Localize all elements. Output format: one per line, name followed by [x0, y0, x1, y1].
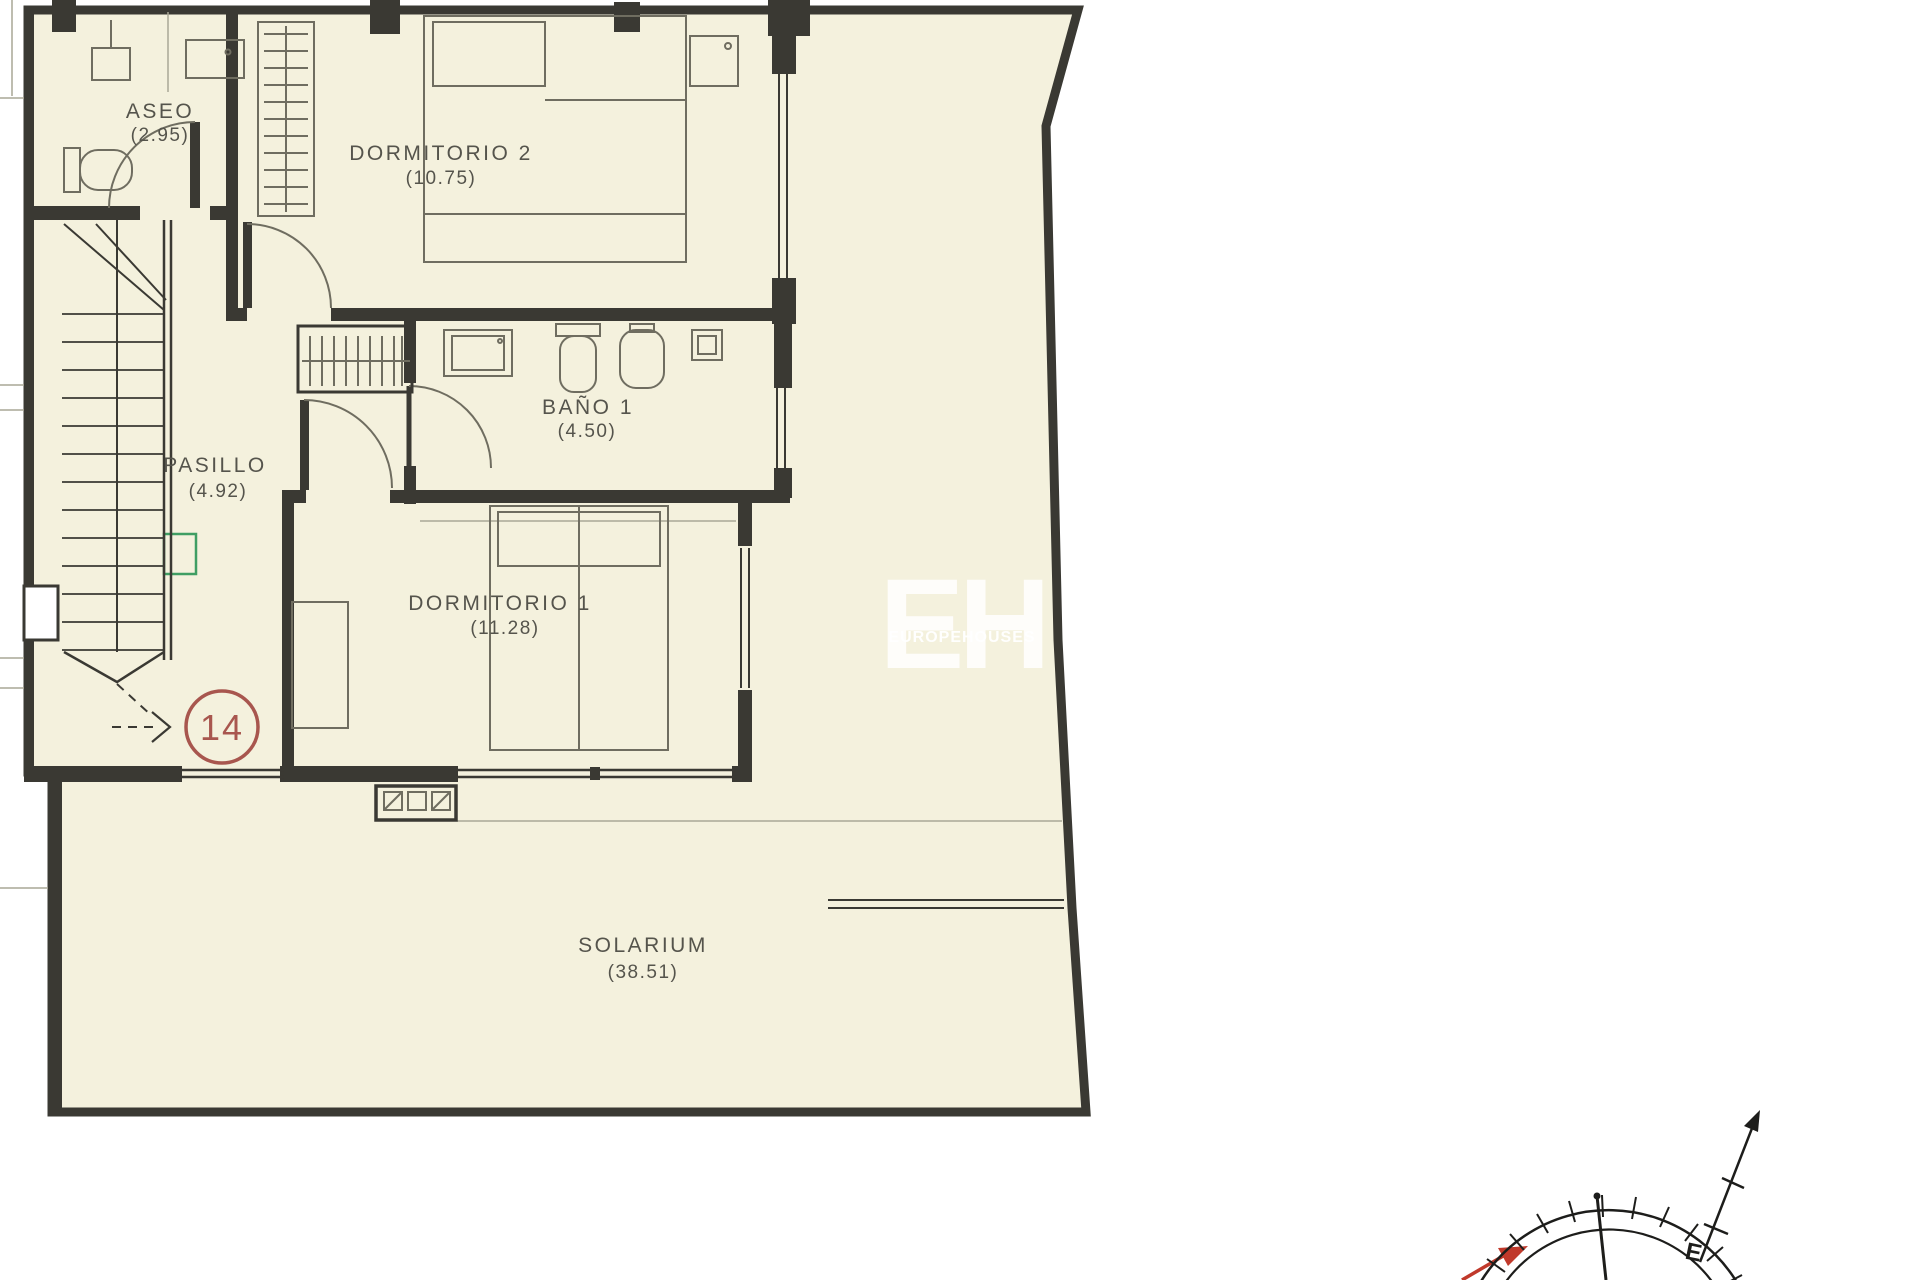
wardrobe-dorm2 [258, 22, 314, 216]
room-area-dormitorio1: (11.28) [470, 618, 539, 639]
room-label-solarium: SOLARIUM [578, 934, 708, 957]
watermark-initials: EH [879, 553, 1045, 696]
meter-box [376, 786, 456, 820]
room-label-dormitorio1: DORMITORIO 1 [408, 592, 592, 615]
stair-niche [24, 586, 58, 640]
unit-number: 14 [200, 707, 244, 748]
room-label-aseo: ASEO [126, 100, 194, 123]
room-area-pasillo: (4.92) [189, 481, 248, 502]
room-area-dormitorio2: (10.75) [406, 168, 477, 189]
compass-letter-e: E [1683, 1238, 1704, 1268]
room-area-bano1: (4.50) [558, 421, 617, 442]
room-label-dormitorio2: DORMITORIO 2 [349, 142, 533, 165]
room-area-aseo: (2.95) [131, 125, 190, 146]
compass-needle [1594, 1110, 1761, 1280]
floor-plan-page: ASEO (2.95) DORMITORIO 2 (10.75) BAÑO 1 … [0, 0, 1920, 1280]
floor-plan-drawing: ASEO (2.95) DORMITORIO 2 (10.75) BAÑO 1 … [0, 0, 1920, 1280]
eh-watermark: EH EUROPEHOUSES [879, 553, 1045, 696]
compass-ticks [1471, 1195, 1755, 1280]
room-area-solarium: (38.51) [608, 962, 679, 983]
room-label-pasillo: PASILLO [163, 454, 267, 477]
compass-rose: E [1462, 1110, 1760, 1280]
room-label-bano1: BAÑO 1 [542, 395, 634, 419]
watermark-text: EUROPEHOUSES [888, 629, 1035, 646]
